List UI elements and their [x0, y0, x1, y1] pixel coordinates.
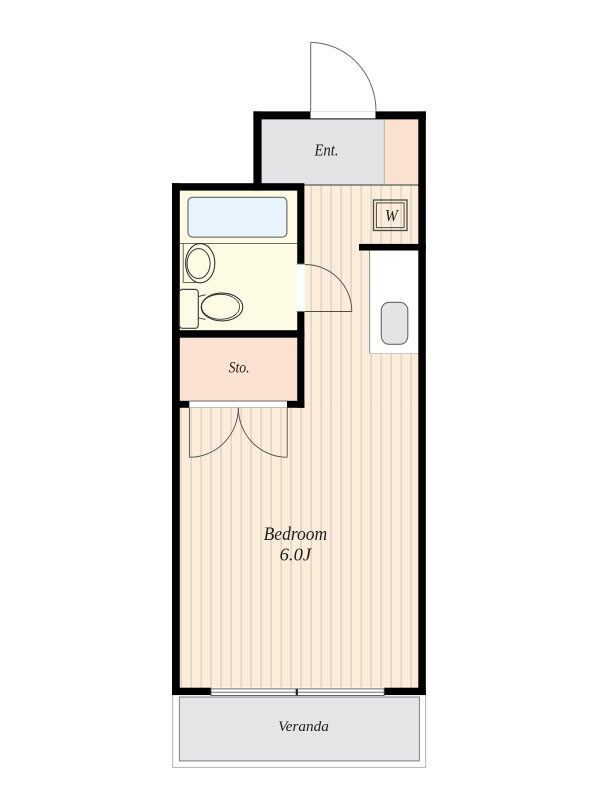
svg-text:Sto.: Sto.	[229, 360, 250, 377]
svg-text:Veranda: Veranda	[278, 719, 329, 735]
svg-text:Bedroom: Bedroom	[264, 524, 328, 545]
svg-text:W: W	[385, 206, 400, 225]
svg-text:Ent.: Ent.	[314, 141, 339, 160]
svg-text:6.0J: 6.0J	[280, 545, 313, 565]
